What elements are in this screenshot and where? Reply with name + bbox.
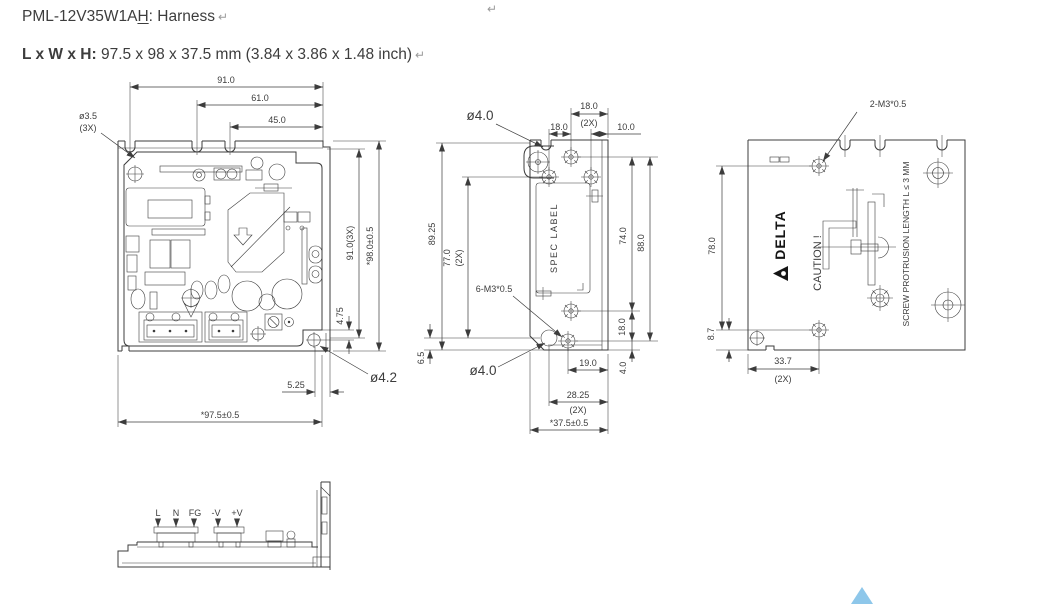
front-led [287, 531, 295, 547]
dim-18-right: 18.0 [617, 318, 627, 336]
dim-4: 4.0 [618, 362, 628, 375]
pcb-mount-hole [126, 165, 144, 183]
delta-logo: DELTA [772, 210, 788, 281]
pcb-mount-hole [250, 326, 266, 342]
dim-18: 18.0 [550, 122, 568, 132]
dim-hole-3-5: ø3.5 [79, 111, 97, 121]
dim-28-25: 28.25 [567, 390, 590, 400]
dim-91-3x: 91.0(3X) [345, 226, 355, 261]
terminal-pins [158, 519, 237, 527]
screw-hole [809, 320, 829, 340]
dim-hole-4-2: ø4.2 [370, 370, 397, 385]
corner-hole-4-2 [306, 332, 326, 350]
mounting-screw-detail [818, 188, 896, 285]
dim-91: 91.0 [217, 75, 235, 85]
trimmer-potentiometer [265, 314, 282, 330]
transformer [126, 188, 210, 226]
dim-45: 45.0 [268, 115, 286, 125]
dim-77-qty: (2X) [454, 249, 464, 266]
top-view-pcb-components [126, 157, 322, 342]
front-view: L N FG -V +V [118, 482, 330, 570]
dim-hole-4-0-bottom: ø4.0 [469, 363, 496, 378]
dim-10: 10.0 [617, 122, 635, 132]
terminal-label-plus-v: +V [231, 508, 242, 518]
dim-33-7: 33.7 [774, 356, 792, 366]
terminal-label-l: L [155, 508, 160, 518]
dim-6-5: 6.5 [416, 352, 426, 365]
caution-label: CAUTION ! [812, 235, 824, 291]
side-view-dimensions: ø4.0 18.0 (2X) 18.0 10.0 89.25 [416, 101, 658, 434]
technical-drawing: 91.0 61.0 45.0 ø3.5 (3X) 91.0(3X) *98.0±… [0, 0, 1044, 605]
side-view: SPEC LABEL ø4.0 18.0 (2X) 18.0 [416, 101, 658, 434]
corner-hole [749, 330, 765, 346]
pcb-mount-hole [181, 288, 201, 317]
dim-hole-3-5-qty: (3X) [79, 123, 96, 133]
drawing-page: PML-12V35W1AH: Harness↵ L x W x H: 97.5 … [0, 0, 1044, 605]
side-view-body: SPEC LABEL [524, 140, 608, 351]
dim-89-25: 89.25 [427, 223, 437, 246]
top-view-dimensions: 91.0 61.0 45.0 ø3.5 (3X) 91.0(3X) *98.0±… [79, 75, 397, 427]
screw-hole [809, 156, 829, 176]
front-view-chassis [118, 482, 330, 570]
screw-hole [867, 285, 893, 311]
dim-18-pair-qty: (2X) [580, 118, 597, 128]
back-view-body: DELTA CAUTION ! SCREW PROTRUSION LENGTH … [748, 135, 965, 350]
back-to-top-button[interactable] [851, 587, 873, 604]
spec-label: SPEC LABEL [549, 203, 559, 273]
dim-19: 19.0 [579, 358, 597, 368]
screw-hole [931, 288, 965, 322]
heatsink [228, 193, 290, 272]
dim-33-7-qty: (2X) [774, 374, 791, 384]
dim-37-5: *37.5±0.5 [550, 418, 588, 428]
dim-thread-6-m3: 6-M3*0.5 [476, 284, 513, 294]
dim-98: *98.0±0.5 [365, 227, 375, 265]
dim-61: 61.0 [251, 93, 269, 103]
dim-18-pair: 18.0 [580, 101, 598, 111]
input-connector [139, 312, 202, 342]
terminal-label-fg: FG [189, 508, 202, 518]
dim-hole-4-0-top: ø4.0 [466, 108, 493, 123]
spec-label-area [536, 183, 590, 293]
front-small-component [266, 531, 283, 547]
dim-97-5: *97.5±0.5 [201, 410, 239, 420]
side-panel-edge [313, 482, 330, 570]
dim-74: 74.0 [618, 227, 628, 245]
terminal-label-n: N [173, 508, 180, 518]
front-input-connector [154, 527, 198, 547]
dim-78: 78.0 [707, 237, 717, 255]
dim-8-7: 8.7 [706, 328, 716, 341]
dim-28-25-qty: (2X) [569, 405, 586, 415]
back-view: DELTA CAUTION ! SCREW PROTRUSION LENGTH … [706, 99, 965, 384]
output-connector [205, 312, 247, 342]
dim-4-75: 4.75 [335, 307, 345, 325]
back-view-dimensions: 2-M3*0.5 78.0 8.7 33.7 (2X) [706, 99, 906, 384]
capacitors [232, 279, 302, 311]
front-output-connector [214, 527, 244, 547]
terminal-label-minus-v: -V [212, 508, 221, 518]
dim-77: 77.0 [442, 249, 452, 267]
screw-protrusion-note: SCREW PROTRUSION LENGTH L ≤ 3 MM [901, 162, 911, 327]
dim-thread-2-m3: 2-M3*0.5 [870, 99, 907, 109]
dim-5-25: 5.25 [287, 380, 305, 390]
arrow-down-icon [234, 228, 252, 245]
brand-name: DELTA [772, 210, 788, 260]
dim-88: 88.0 [636, 234, 646, 252]
top-view: 91.0 61.0 45.0 ø3.5 (3X) 91.0(3X) *98.0±… [79, 75, 397, 427]
screw-hole [923, 158, 953, 188]
